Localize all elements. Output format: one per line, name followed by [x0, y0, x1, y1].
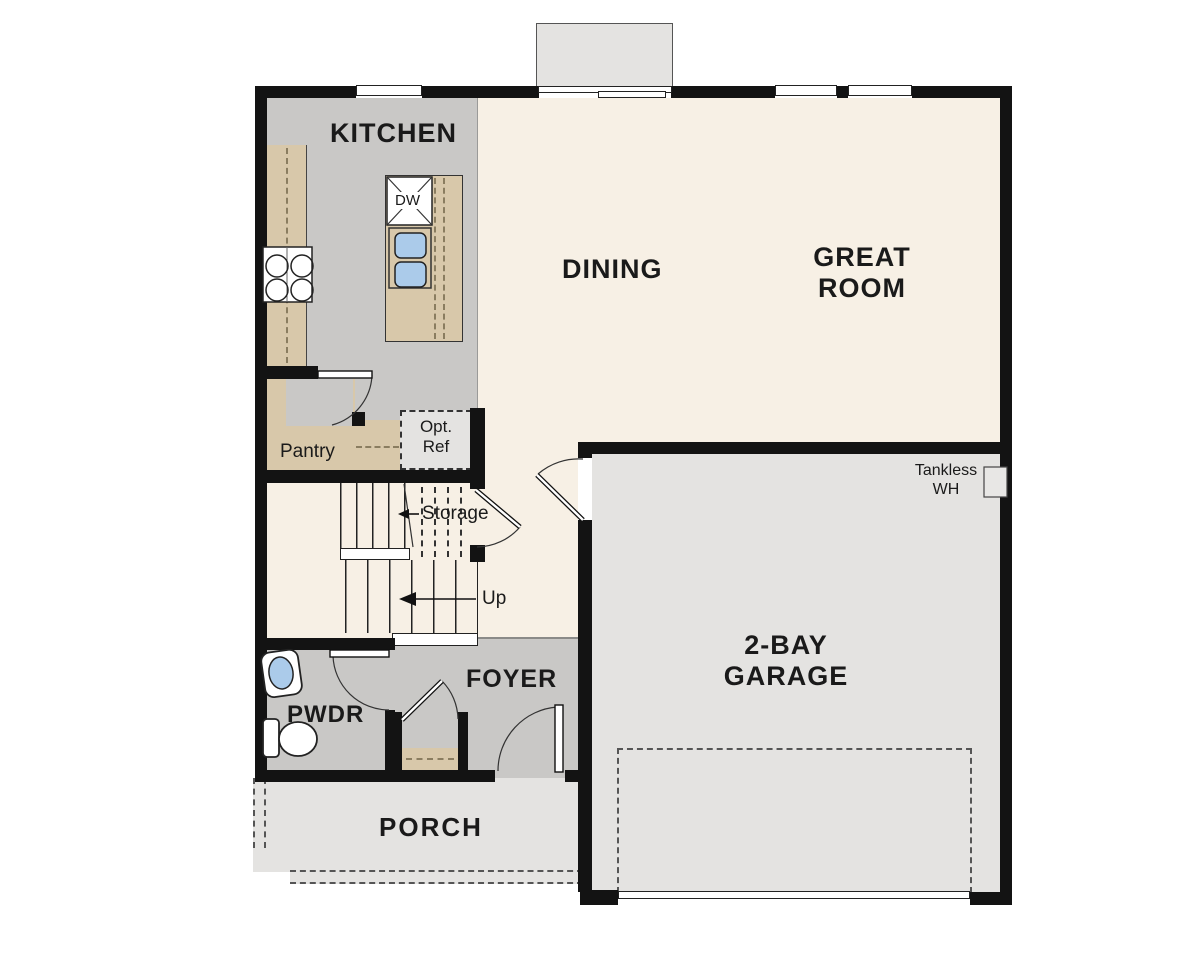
- storage-label: Storage: [422, 503, 489, 525]
- stairs-upper-flight: [340, 483, 410, 548]
- wall-garage-top: [580, 442, 1000, 454]
- garage-label: 2-BAY GARAGE: [706, 630, 866, 692]
- wall-garage-left: [578, 520, 592, 892]
- closet-dash: [406, 758, 454, 760]
- counter-block: [355, 420, 400, 470]
- porch-edge-strip: [290, 870, 583, 884]
- wall-top-3: [671, 86, 775, 98]
- wall-foyer-bottom-1: [255, 770, 495, 782]
- island-dash-1: [434, 178, 436, 339]
- dining-label: DINING: [562, 254, 663, 285]
- kitchen-window: [356, 85, 422, 96]
- foyer-label: FOYER: [466, 665, 557, 694]
- wall-pwdr-top: [255, 638, 395, 650]
- wall-optref-right: [470, 408, 485, 489]
- wall-top-5: [912, 86, 1012, 98]
- island-dash-2: [443, 178, 445, 339]
- garage-apron-dashed: [617, 748, 972, 893]
- wall-top-1: [255, 86, 356, 98]
- stair-landing-bottom: [392, 633, 478, 646]
- counter-block-dash: [356, 446, 399, 448]
- wall-garage-bottom-left: [580, 890, 618, 905]
- kitchen-dining-boundary: [477, 98, 478, 410]
- wall-right: [1000, 86, 1012, 904]
- stairs-lower-flight: [345, 560, 478, 633]
- patio-alcove: [536, 23, 673, 88]
- porch-label: PORCH: [379, 812, 483, 843]
- pantry-label: Pantry: [280, 441, 335, 463]
- counter-centerline-dash: [286, 148, 288, 363]
- sliding-door-panel: [598, 91, 666, 98]
- wall-pantry-post: [352, 412, 365, 426]
- wall-garage-left-upper: [578, 442, 592, 458]
- wall-top-4: [837, 86, 848, 98]
- porch-left-edge: [253, 778, 266, 848]
- wall-closet-right: [458, 712, 468, 770]
- floor-plan: KITCHEN DINING GREAT ROOM 2-BAY GARAGE F…: [0, 0, 1204, 964]
- wall-garage-bottom-right: [970, 892, 1012, 905]
- greatroom-window-1: [775, 85, 837, 96]
- tankless-wh-label: Tankless WH: [906, 461, 986, 499]
- wall-top-2: [422, 86, 539, 98]
- pantry-door-recess: [286, 379, 353, 426]
- dishwasher-label: DW: [394, 192, 421, 209]
- stair-landing-mid: [340, 548, 410, 560]
- wall-left: [255, 86, 267, 782]
- wall-stair-top: [255, 470, 485, 483]
- opt-ref-label: Opt. Ref: [402, 417, 470, 457]
- hall-foyer-boundary: [478, 637, 578, 639]
- greatroom-window-2: [848, 85, 912, 96]
- wall-pantry-top: [255, 366, 318, 379]
- wall-closet-left: [392, 712, 402, 770]
- pwdr-label: PWDR: [287, 701, 364, 729]
- up-label: Up: [482, 588, 506, 610]
- garage-door: [618, 891, 970, 899]
- kitchen-label: KITCHEN: [330, 118, 457, 149]
- wall-storage-stub: [470, 545, 485, 562]
- wall-foyer-bottom-2: [565, 770, 585, 782]
- great-room-label: GREAT ROOM: [792, 242, 932, 304]
